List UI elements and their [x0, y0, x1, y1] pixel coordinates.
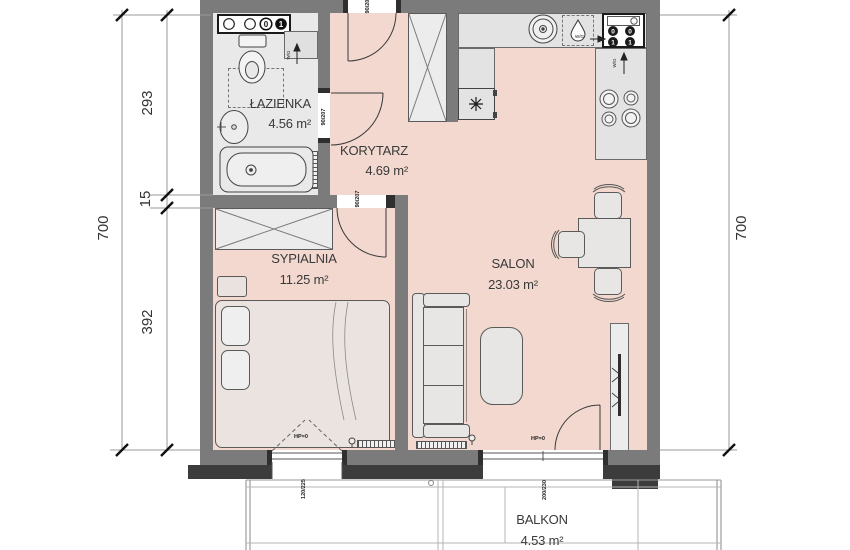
wall-top-right — [396, 0, 660, 13]
sofa-seat — [423, 307, 464, 424]
wardrobe-corridor — [408, 13, 447, 122]
coffee-table — [480, 327, 523, 405]
pillow — [221, 350, 250, 390]
chair-seat — [558, 231, 585, 258]
wall-top-left — [200, 0, 348, 13]
radiator-bedroom — [357, 440, 398, 448]
sofa-armrest — [423, 293, 470, 307]
bathroom-door-jamb — [318, 88, 330, 93]
balcony-door-jamb — [478, 450, 483, 465]
balcony-door-jamb — [603, 450, 608, 465]
room-label-salon: SALON 23.03 m² — [453, 256, 573, 292]
dishwasher — [562, 15, 594, 46]
dim-right-700: 700 — [733, 206, 751, 250]
pillow — [221, 306, 250, 346]
label-bedroom-door: 90/207 — [354, 182, 362, 216]
meter-box-window — [607, 16, 640, 26]
room-label-korytarz: KORYTARZ 4.69 m² — [330, 143, 408, 178]
label-balcony-door: 200/230 — [541, 473, 549, 507]
label-wg-bathroom: W/G — [285, 38, 293, 72]
wall-bathroom-right-lower — [318, 143, 330, 195]
room-label-balkon: BALKON 4.53 m² — [482, 512, 602, 548]
wall-bottom-1 — [200, 450, 272, 465]
wall-bathroom-bottom — [213, 195, 337, 208]
label-entrance-door: 90/207 — [364, 0, 372, 22]
kitchen-tall-cabinet — [458, 48, 495, 90]
chair-seat — [594, 192, 622, 219]
label-bedroom-window: 120/225 — [300, 472, 308, 506]
sofa-front-edge — [466, 309, 467, 422]
fridge-hinge — [493, 112, 497, 118]
insulation-strip-1 — [188, 465, 272, 479]
chair-seat — [594, 268, 622, 295]
floor-plan: 0 1 0 0 1 1 — [0, 0, 850, 550]
wall-left — [200, 0, 213, 450]
wall-bottom-2 — [342, 450, 483, 465]
room-label-sypialnia: SYPIALNIA 11.25 m² — [244, 251, 364, 287]
fridge — [458, 88, 495, 120]
wall-bottom-3 — [603, 450, 660, 465]
tv-sideboard — [610, 323, 629, 451]
wall-right — [647, 0, 660, 450]
wall-bathroom-right-upper — [318, 13, 330, 93]
dining-table — [578, 218, 631, 268]
radiator-salon — [416, 441, 467, 449]
room-label-lazienka: ŁAZIENKA 4.56 m² — [230, 96, 311, 131]
wardrobe-bedroom — [215, 208, 333, 250]
label-wg-kitchen-right: W/G — [611, 46, 619, 80]
dim-left-293: 293 — [139, 81, 157, 125]
dim-left-392: 392 — [139, 300, 157, 344]
balcony-pillar-right — [612, 479, 658, 489]
insulation-strip-3 — [603, 465, 660, 479]
wall-kitchen — [447, 13, 458, 122]
label-hp-bedroom-window: HP=0 — [294, 434, 308, 440]
window-jamb — [342, 450, 347, 465]
kitchen-counter-right — [595, 48, 647, 160]
sofa-cushion-line — [424, 345, 463, 346]
bathroom-door-jamb — [318, 138, 330, 143]
radiator-bathroom — [310, 151, 318, 189]
label-bathroom-door: 90/207 — [320, 100, 328, 134]
insulation-strip-2 — [342, 465, 483, 479]
entrance-jamb — [396, 0, 401, 13]
nightstand — [217, 276, 247, 297]
bedroom-door-jamb — [386, 195, 395, 208]
sofa-cushion-line — [424, 385, 463, 386]
entrance-jamb — [343, 0, 348, 13]
dim-left-700: 700 — [95, 206, 113, 250]
label-wg-kitchen-top: W/G — [575, 34, 584, 39]
dim-left-15: 15 — [137, 177, 155, 221]
sofa-armrest — [423, 424, 470, 438]
label-hp-balcony-door: HP=0 — [531, 436, 545, 442]
installation-shaft — [217, 14, 291, 34]
fridge-hinge — [493, 90, 497, 96]
wall-bedroom-right — [395, 195, 408, 450]
window-jamb — [267, 450, 272, 465]
